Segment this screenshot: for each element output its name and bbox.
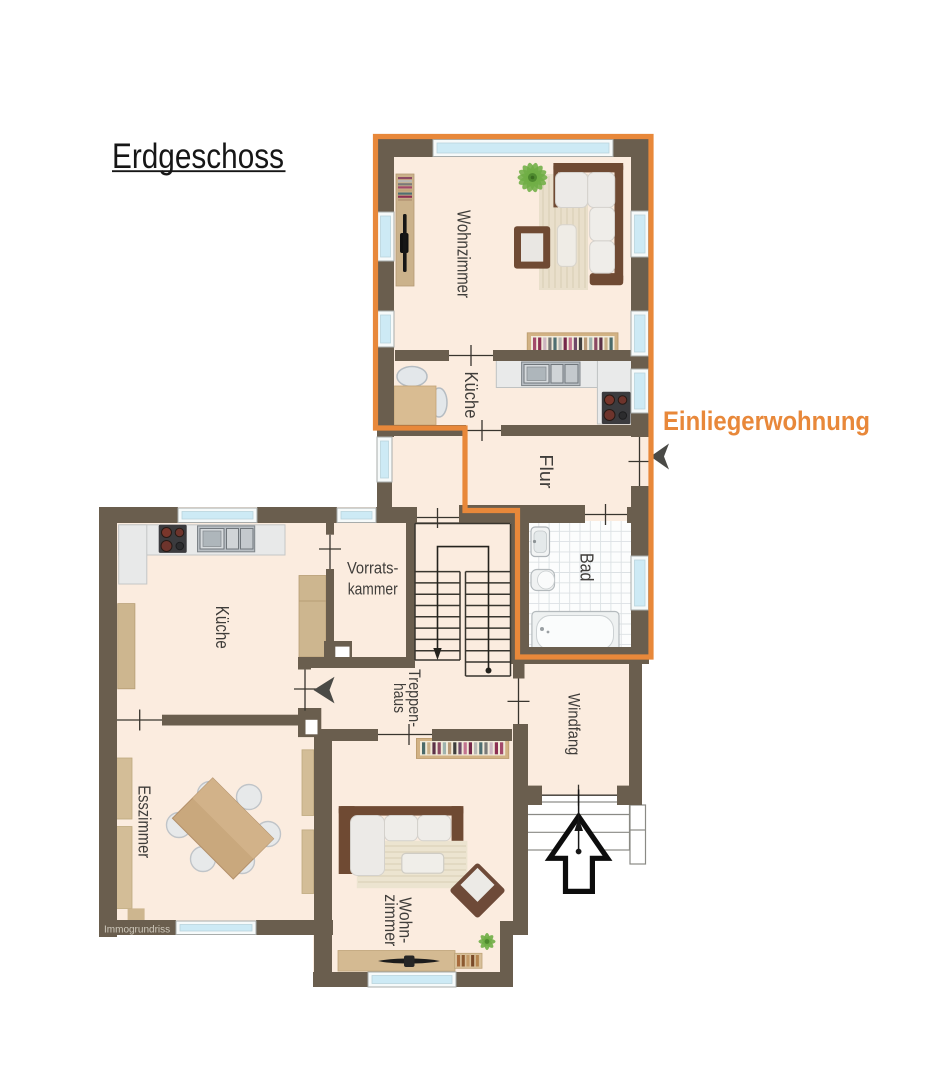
- svg-text:Wohnzimmer: Wohnzimmer: [454, 210, 475, 298]
- svg-text:haus: haus: [390, 683, 409, 713]
- svg-text:zimmer: zimmer: [381, 894, 401, 946]
- svg-text:Windfang: Windfang: [565, 693, 584, 755]
- svg-text:Esszimmer: Esszimmer: [135, 785, 155, 858]
- svg-text:kammer: kammer: [348, 580, 398, 599]
- svg-text:Erdgeschoss: Erdgeschoss: [112, 137, 284, 176]
- svg-text:Immogrundriss: Immogrundriss: [104, 925, 170, 936]
- svg-text:Küche: Küche: [212, 606, 233, 649]
- svg-text:Flur: Flur: [536, 454, 557, 488]
- svg-text:Küche: Küche: [461, 372, 482, 419]
- svg-text:Einliegerwohnung: Einliegerwohnung: [663, 406, 870, 436]
- svg-text:Vorrats-: Vorrats-: [347, 559, 399, 578]
- svg-text:Bad: Bad: [577, 553, 598, 582]
